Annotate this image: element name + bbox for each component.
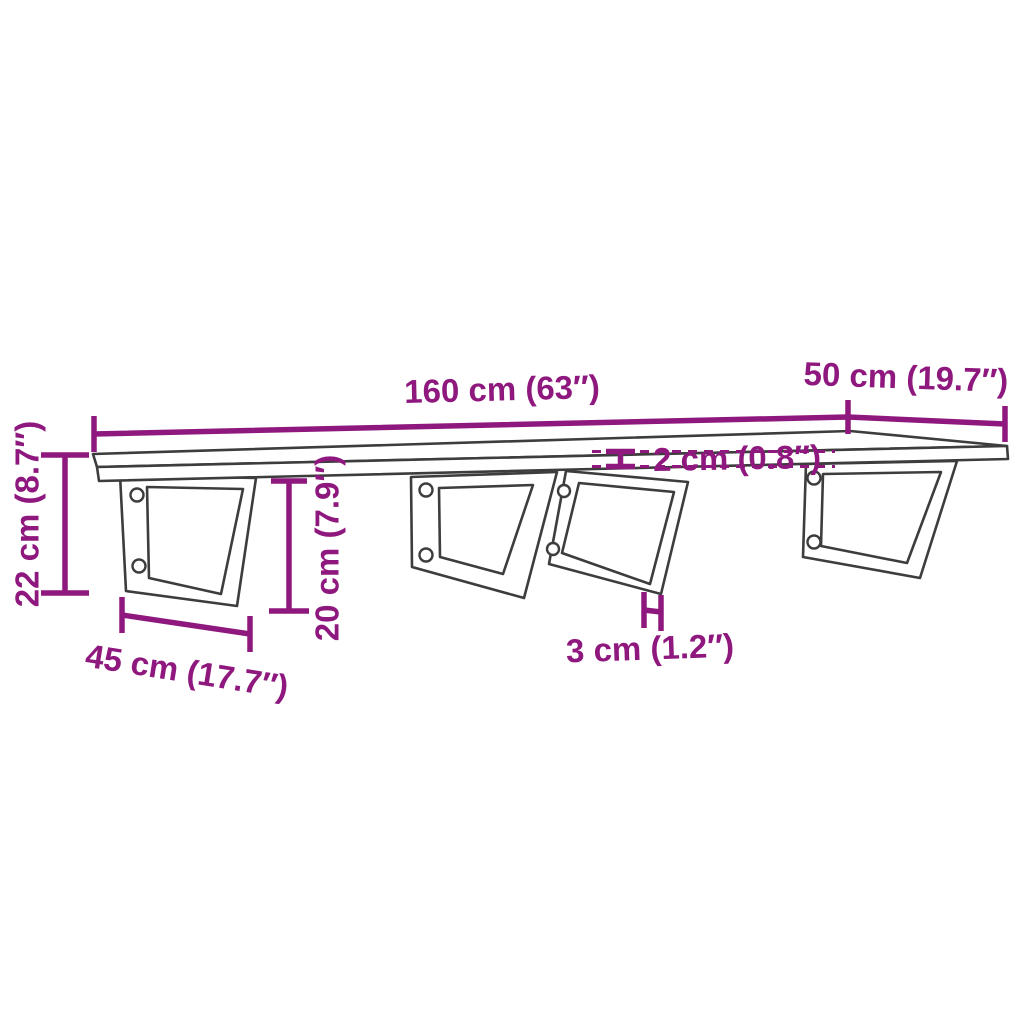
dim-label-bracket-height: 22 cm (8.7″) (9, 421, 46, 607)
bracket-2-screw-hole-top (420, 484, 433, 497)
dim-bracket-drop (269, 481, 309, 611)
dim-bar-width (644, 592, 661, 631)
bracket-4-screw-hole-bottom (808, 536, 821, 549)
dim-bar-connector (644, 610, 661, 612)
bracket-3-screw-hole-bottom (547, 543, 559, 555)
dim-depth45-line (122, 615, 250, 634)
bracket-3-screw-hole-top (558, 485, 570, 497)
dim-label-shelf-length: 160 cm (63″) (404, 368, 600, 410)
dim-label-bar-width: 3 cm (1.2″) (565, 627, 734, 670)
dim-label-bracket-drop: 20 cm (7.9″) (309, 455, 346, 641)
dim-label-shelf-thickness: 2 cm (0.8″) (653, 438, 822, 478)
bracket-2 (411, 472, 557, 598)
dim-label-shelf-depth: 50 cm (19.7″) (803, 355, 1009, 399)
bracket-3 (547, 471, 688, 594)
bracket-2-screw-hole-bottom (420, 549, 433, 562)
diagram-canvas: 160 cm (63″) 50 cm (19.7″) 2 cm (0.8″) 2… (0, 0, 1024, 1024)
bracket-4 (803, 461, 957, 578)
bracket-1-screw-hole-bottom (133, 560, 146, 573)
bracket-1 (120, 475, 256, 606)
dim-label-bracket-depth: 45 cm (17.7″) (83, 637, 291, 706)
dim-bracket-height (41, 455, 89, 593)
dimension-diagram: 160 cm (63″) 50 cm (19.7″) 2 cm (0.8″) 2… (0, 0, 1024, 1024)
bracket-1-screw-hole-top (131, 489, 144, 502)
